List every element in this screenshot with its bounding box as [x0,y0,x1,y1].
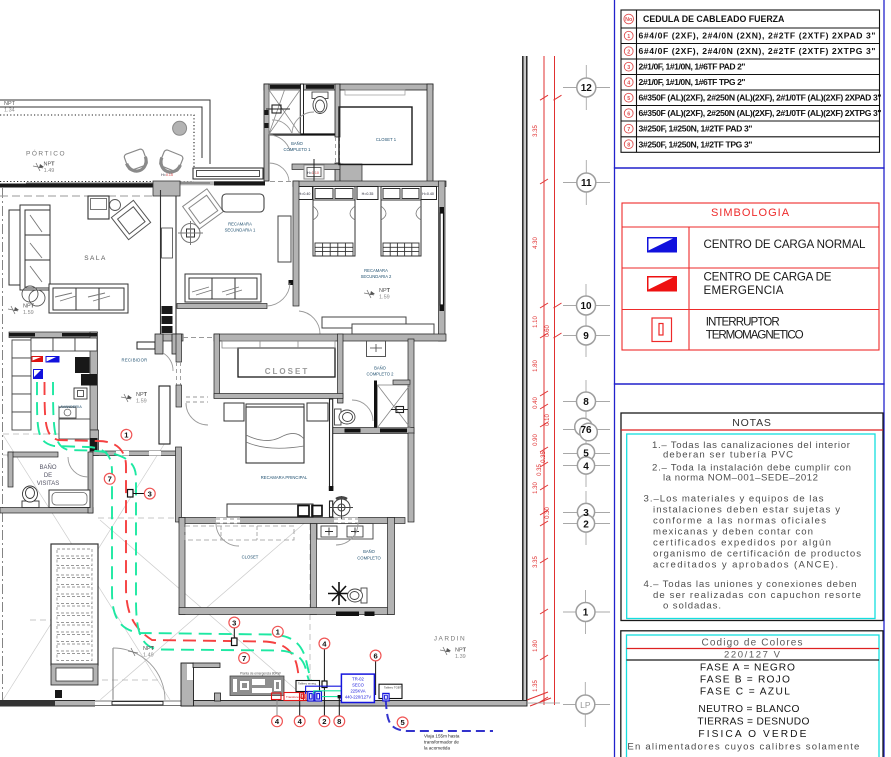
svg-text:COMPLETO 2: COMPLETO 2 [367,372,395,377]
svg-text:3#250F, 1#250N, 1#2TF PAD 3: 3#250F, 1#250N, 1#2TF PAD 3" [639,124,753,134]
svg-text:conforme a las normas oficiale: conforme a las normas oficiales [653,516,826,527]
svg-text:EMERGENCIA: EMERGENCIA [704,284,784,297]
svg-text:7: 7 [242,654,246,663]
svg-text:COMPLETO: COMPLETO [357,556,381,561]
svg-text:transformador de: transformador de [424,740,459,745]
svg-text:3#250F, 1#250N, 1#2TF TPG 3: 3#250F, 1#250N, 1#2TF TPG 3" [639,139,753,149]
svg-text:2#1/0F, 1#1/0N, 1#6TF TPG: 2#1/0F, 1#1/0N, 1#6TF TPG 2" [639,77,746,87]
svg-text:0.35: 0.35 [541,451,547,463]
svg-text:225KVA: 225KVA [350,689,365,694]
svg-text:SECUNDARIA 2: SECUNDARIA 2 [361,274,392,279]
svg-text:H=0.15: H=0.15 [161,173,173,177]
svg-text:COMPLETO 1: COMPLETO 1 [284,147,312,152]
svg-text:de ser realizadas con capuchon: de ser realizadas con capuchon resorte [653,590,861,601]
svg-text:BAÑO: BAÑO [39,464,56,471]
svg-text:deberan ser tubería PVC: deberan ser tubería PVC [663,450,793,461]
svg-text:1.30: 1.30 [533,482,539,494]
svg-text:NEUTRO = BLANCO: NEUTRO = BLANCO [698,704,799,715]
svg-text:FASE C = AZUL: FASE C = AZUL [700,687,790,698]
svg-text:CLOSET 1: CLOSET 1 [376,137,397,142]
svg-text:1.34: 1.34 [4,108,15,114]
svg-text:JARDIN: JARDIN [434,636,466,643]
svg-text:3.35: 3.35 [533,556,539,568]
svg-text:organismo de certificación de: organismo de certificación de productos [653,549,861,560]
svg-text:7: 7 [108,475,112,484]
svg-text:NPT: NPT [23,304,35,310]
svg-text:RECAMARA: RECAMARA [228,222,252,227]
svg-text:1.59: 1.59 [379,295,390,301]
svg-text:CLOSET: CLOSET [242,555,259,560]
svg-text:NPT: NPT [43,162,55,168]
svg-text:o soldadas.: o soldadas. [663,601,721,612]
svg-text:Planta de emergencia 80KW: Planta de emergencia 80KW [240,672,281,676]
svg-text:PÓRTICO: PÓRTICO [26,149,66,158]
svg-text:1.49: 1.49 [44,168,55,174]
svg-text:10: 10 [580,301,592,312]
svg-text:FASE B = ROJO: FASE B = ROJO [700,675,790,686]
svg-text:mexicanas y deben contar con: mexicanas y deben contar con [653,527,813,538]
svg-text:SALA: SALA [84,255,107,262]
svg-text:9: 9 [583,331,589,342]
svg-text:3.35: 3.35 [533,125,539,137]
svg-text:3: 3 [148,489,152,498]
svg-text:DE: DE [44,473,52,479]
svg-text:5: 5 [583,448,589,459]
svg-text:1.80: 1.80 [533,360,539,372]
svg-text:8: 8 [583,397,589,408]
svg-text:NPT: NPT [379,288,391,294]
svg-text:SECUNDARIA 1: SECUNDARIA 1 [225,228,256,233]
svg-text:instalaciones deben estar suje: instalaciones deben estar sujetas y [653,505,840,516]
svg-text:1.10: 1.10 [533,316,539,328]
svg-text:4.30: 4.30 [533,237,539,249]
svg-text:H=0.40: H=0.40 [299,192,311,196]
svg-text:76: 76 [580,425,592,436]
svg-text:8: 8 [627,142,630,148]
svg-text:H=1.10: H=1.10 [307,171,319,175]
svg-text:FASE A = NEGRO: FASE A = NEGRO [700,663,795,674]
svg-text:1: 1 [583,608,589,619]
svg-text:2: 2 [322,717,326,726]
svg-text:No: No [625,17,633,23]
svg-text:Transferencia: Transferencia [286,695,305,699]
svg-text:RECAMARA: RECAMARA [364,268,388,273]
svg-text:SIMBOLOGIA: SIMBOLOGIA [711,207,790,219]
svg-text:H=0.35: H=0.35 [362,192,374,196]
svg-text:4: 4 [627,80,630,86]
svg-text:1.35: 1.35 [533,680,539,692]
svg-text:3: 3 [232,618,236,627]
svg-text:2: 2 [627,49,630,55]
svg-text:BAÑO: BAÑO [363,549,376,554]
svg-text:0.30: 0.30 [545,507,551,519]
svg-text:Codigo de Colores: Codigo de Colores [702,638,803,649]
svg-text:0.60: 0.60 [545,325,551,337]
svg-text:440-220/127V: 440-220/127V [345,695,372,700]
svg-text:RECIBIDOR: RECIBIDOR [122,358,148,363]
svg-text:la acometida: la acometida [424,746,450,751]
svg-text:NPT: NPT [143,646,155,652]
svg-text:En alimentadores cuyos cali: En alimentadores cuyos calibres solament… [627,742,859,753]
svg-text:1.49: 1.49 [143,653,154,659]
svg-text:4: 4 [583,461,589,472]
svg-text:1.39: 1.39 [455,654,466,660]
svg-text:certificados expedidos por alg: certificados expedidos por algún [653,538,831,549]
svg-text:6: 6 [373,651,377,660]
svg-text:SECO: SECO [352,683,365,688]
svg-text:220/127 V: 220/127 V [724,650,781,661]
svg-text:0.40: 0.40 [533,397,539,409]
svg-text:6: 6 [627,111,630,117]
svg-text:acreditados y aprobados (ANCE): acreditados y aprobados (ANCE). [653,560,838,571]
svg-text:NPT: NPT [4,101,16,107]
svg-text:2: 2 [583,519,589,530]
svg-text:NPT: NPT [455,648,467,654]
svg-text:BAÑO: BAÑO [374,366,387,371]
svg-text:5: 5 [627,96,630,102]
svg-text:Tablero emerg.: Tablero emerg. [298,682,317,686]
svg-text:CLOSET: CLOSET [265,367,309,376]
svg-text:VISITAS: VISITAS [37,481,60,487]
svg-text:CEDULA DE CABLEADO FUERZA: CEDULA DE CABLEADO FUERZA [643,14,785,24]
svg-text:CENTRO DE CARGA NORMAL: CENTRO DE CARGA NORMAL [704,238,867,251]
svg-text:4.– Todas las uniones y conexi: 4.– Todas las uniones y conexiones deben [644,579,857,590]
svg-text:Tablero TGBT: Tablero TGBT [384,686,402,690]
svg-text:1.59: 1.59 [23,310,34,316]
svg-text:6#350F (AL)(2XF), 2#250N (AL: 6#350F (AL)(2XF), 2#250N (AL)(2XF), 2#1/… [639,108,882,118]
svg-text:Viaja 155m hasta: Viaja 155m hasta [424,734,460,739]
svg-text:3: 3 [627,65,630,71]
svg-text:1: 1 [627,34,630,40]
svg-text:6#350F (AL)(2XF), 2#250N (AL: 6#350F (AL)(2XF), 2#250N (AL)(2XF), 2#1/… [639,93,882,103]
svg-text:INTERRUPTOR: INTERRUPTOR [706,316,780,329]
svg-text:3: 3 [583,508,589,519]
svg-text:TR-02: TR-02 [352,677,364,682]
svg-text:11: 11 [581,178,592,189]
svg-text:BAÑO: BAÑO [291,141,304,146]
svg-text:H=0.40: H=0.40 [422,192,434,196]
svg-text:0.90: 0.90 [533,434,539,446]
svg-text:RECAMARA PRINCIPAL: RECAMARA PRINCIPAL [261,475,308,480]
svg-text:LAVANDERIA: LAVANDERIA [58,405,82,409]
svg-text:TIERRAS = DESNUDO: TIERRAS = DESNUDO [697,717,809,728]
svg-text:NPT: NPT [136,392,148,398]
svg-text:CENTRO DE CARGA DE: CENTRO DE CARGA DE [704,271,832,284]
svg-text:2#1/0F, 1#1/0N, 1#6TF PAD: 2#1/0F, 1#1/0N, 1#6TF PAD 2" [639,62,746,72]
svg-text:0.10: 0.10 [545,414,551,426]
svg-text:la norma NOM–001–SEDE–2012: la norma NOM–001–SEDE–2012 [663,473,818,484]
svg-text:LP: LP [580,700,591,710]
svg-text:TERMOMAGNETICO: TERMOMAGNETICO [706,329,804,342]
svg-text:1.59: 1.59 [136,399,147,405]
svg-text:6#4/0F (2XF), 2#4/0N (2XN), 2#: 6#4/0F (2XF), 2#4/0N (2XN), 2#2TF (2XTF)… [639,31,876,41]
svg-text:NOTAS: NOTAS [732,417,771,429]
svg-text:3.–Los materiales y equipos de: 3.–Los materiales y equipos de las [644,494,824,505]
svg-text:7: 7 [627,127,630,133]
svg-text:12: 12 [581,83,593,94]
svg-text:FISICA O VERDE: FISICA O VERDE [698,729,806,740]
svg-text:1.80: 1.80 [533,640,539,652]
svg-text:8: 8 [337,717,341,726]
svg-text:0.35: 0.35 [537,464,543,476]
svg-text:6#4/0F (2XF), 2#4/0N (2XN), 2#: 6#4/0F (2XF), 2#4/0N (2XN), 2#2TF (2XTF)… [639,46,876,56]
